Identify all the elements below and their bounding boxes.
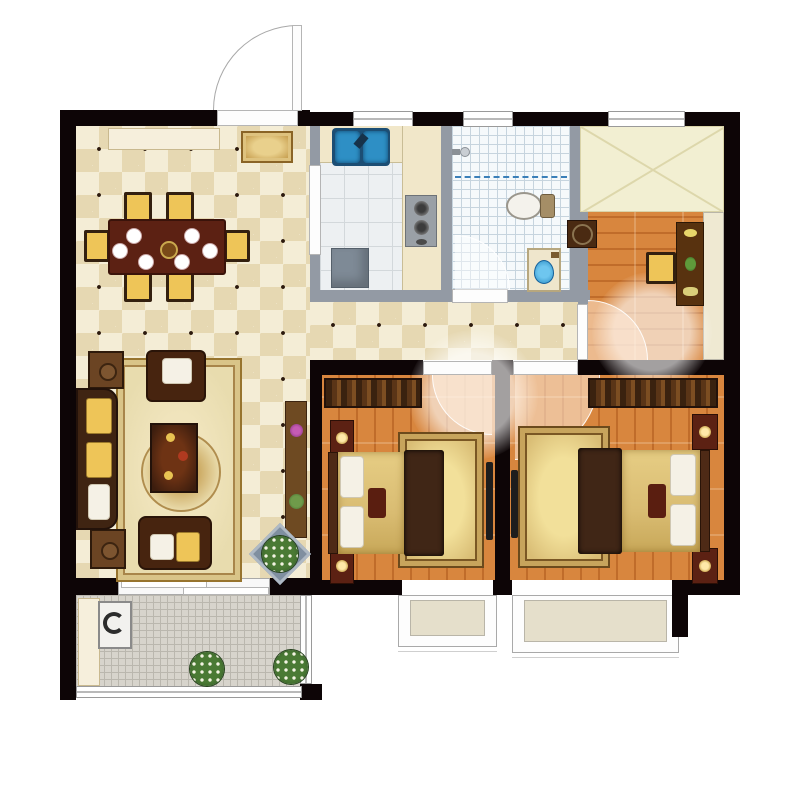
sofa-pillow: [88, 484, 110, 520]
armchair: [138, 516, 212, 570]
purple-flower: [290, 424, 303, 437]
bed-pillow: [670, 454, 696, 496]
shower-head-icon: [452, 146, 470, 158]
armchair: [146, 350, 206, 402]
dinner-plate: [138, 254, 154, 270]
wall-bedroom1-left: [310, 360, 322, 595]
stove-burner: [414, 220, 429, 235]
entry-door-leaf: [292, 25, 302, 111]
sliding-door-panel: [183, 587, 269, 595]
dining-chair: [124, 272, 152, 302]
table-centerpiece: [160, 241, 178, 259]
hallway-floor: [310, 302, 578, 360]
balcony-plant: [190, 652, 224, 686]
study-window: [608, 111, 685, 127]
bedroom2-bay-window-sill: [524, 600, 667, 642]
wall-top-mid: [298, 110, 310, 126]
sideboard: [108, 128, 220, 150]
bed-pillow: [340, 456, 364, 498]
bedroom2-bed: [578, 448, 710, 554]
wall-left: [60, 110, 76, 700]
bedroom1-wardrobe: [324, 378, 422, 408]
bedroom1-tv: [486, 462, 493, 540]
green-plant: [289, 494, 304, 509]
washing-machine: [98, 601, 132, 649]
wall-kitchen-bath: [440, 126, 452, 302]
desk-plant: [685, 257, 696, 271]
entry-door-opening: [217, 110, 298, 126]
bed-pillow: [670, 504, 696, 546]
side-table: [88, 351, 124, 389]
dining-chair: [124, 192, 152, 222]
bedroom2-door-leaf: [513, 361, 578, 375]
side-table: [90, 529, 126, 569]
bedroom2-wardrobe: [588, 378, 718, 408]
bed-accent-pillow: [648, 484, 666, 518]
study-closet-area: [580, 126, 724, 212]
bed-pillow: [340, 506, 364, 548]
study-bay-window: [703, 212, 724, 360]
toilet: [506, 192, 556, 220]
balcony-cabinet: [78, 598, 100, 686]
stove-burner: [414, 201, 429, 216]
coffee-table-item: [164, 471, 173, 480]
gas-stove: [405, 195, 437, 247]
coffee-table: [150, 423, 198, 493]
vanity-item: [551, 252, 559, 258]
sofa: [76, 388, 118, 530]
doormat-rug: [241, 131, 293, 163]
washer-drum: [103, 612, 125, 634]
kitchen-window: [353, 111, 413, 127]
dinner-plate: [184, 228, 200, 244]
refrigerator: [331, 248, 369, 288]
flower-arrangement: [262, 536, 298, 572]
wall-bedrooms-bottom-mid: [493, 580, 512, 595]
bathroom-window: [463, 111, 513, 127]
dining-chair: [84, 230, 110, 262]
bathroom-vanity: [527, 248, 561, 292]
wall-nub-bottom-right: [672, 595, 688, 637]
dining-chair: [224, 230, 250, 262]
bedroom1-bed: [328, 450, 444, 556]
kitchen-sink: [332, 128, 390, 166]
study-door-leaf: [577, 304, 588, 360]
armchair-cushion: [176, 532, 200, 562]
dinner-plate: [174, 254, 190, 270]
wall-hall-bedrooms-c: [578, 360, 724, 375]
bedroom2-nightstand: [692, 414, 718, 450]
balcony-window: [76, 686, 302, 698]
bed-headboard: [700, 450, 710, 552]
bedroom2-tv: [511, 470, 518, 538]
dinner-plate: [202, 243, 218, 259]
toilet-bowl: [506, 192, 542, 220]
bed-runner: [578, 448, 622, 554]
stove-knob: [416, 239, 427, 245]
shower-curtain-line: [455, 176, 567, 178]
dining-chair: [166, 192, 194, 222]
study-desk: [676, 222, 704, 306]
wall-top-left: [60, 110, 217, 126]
dinner-plate: [126, 228, 142, 244]
desk-chair: [646, 252, 676, 284]
vanity-sink: [534, 260, 554, 284]
sofa-cushion: [86, 442, 112, 478]
toilet-tank: [540, 194, 555, 218]
sink-basin: [335, 131, 360, 163]
dining-table: [108, 219, 226, 275]
coffee-table-item: [166, 433, 175, 442]
entry-door-arc: [213, 25, 298, 110]
bed-runner: [404, 450, 444, 556]
kitchen-pass-through: [309, 165, 321, 255]
balcony-plant: [274, 650, 308, 684]
wall-right: [724, 112, 740, 582]
desk-book: [683, 287, 698, 296]
wall-hall-bedrooms-a: [310, 360, 423, 375]
floor-plan: [0, 0, 800, 800]
armchair-pillow: [162, 358, 192, 384]
bedroom1-door-leaf: [423, 361, 492, 375]
wall-between-bedrooms: [495, 360, 510, 595]
dinner-plate: [112, 243, 128, 259]
coffee-table-item: [178, 451, 188, 461]
tv-cabinet: [285, 401, 307, 538]
round-stool: [567, 220, 597, 248]
desk-lamp: [684, 229, 697, 237]
wall-balcony-corner: [300, 684, 322, 700]
bed-headboard: [328, 452, 338, 554]
bedroom1-bay-window-sill: [410, 600, 485, 636]
wall-living-bottom-a: [76, 578, 118, 595]
armchair-pillow: [150, 534, 174, 560]
bathroom-door: [452, 289, 508, 303]
bed-accent-pillow: [368, 488, 386, 518]
sofa-cushion: [86, 398, 112, 434]
dining-chair: [166, 272, 194, 302]
